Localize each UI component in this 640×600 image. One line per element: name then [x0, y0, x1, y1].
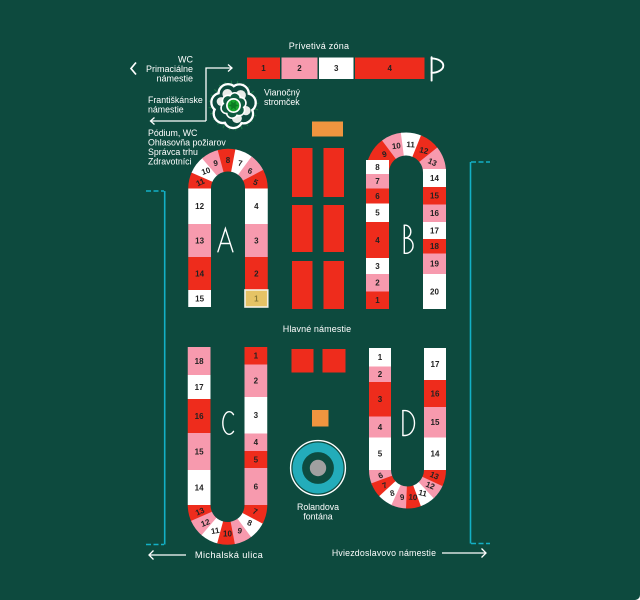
svg-text:3: 3	[378, 395, 383, 404]
svg-text:2: 2	[378, 370, 383, 379]
svg-text:17: 17	[431, 360, 440, 369]
svg-text:4: 4	[375, 236, 380, 245]
svg-text:17: 17	[430, 226, 439, 235]
svg-text:4: 4	[254, 438, 259, 447]
svg-text:17: 17	[195, 383, 204, 392]
svg-text:14: 14	[430, 174, 439, 183]
svg-text:5: 5	[254, 455, 259, 464]
svg-text:1: 1	[254, 352, 259, 361]
svg-text:Hlavné námestie: Hlavné námestie	[283, 324, 352, 334]
svg-text:Primaciálne: Primaciálne	[146, 64, 193, 74]
svg-text:20: 20	[430, 287, 439, 296]
svg-text:2: 2	[254, 269, 259, 278]
svg-text:10: 10	[391, 141, 401, 151]
svg-text:11: 11	[406, 140, 416, 150]
svg-text:14: 14	[431, 450, 440, 459]
svg-text:18: 18	[195, 357, 204, 366]
svg-text:14: 14	[195, 269, 204, 278]
svg-text:14: 14	[195, 483, 204, 492]
svg-text:2: 2	[254, 377, 259, 386]
svg-text:2: 2	[375, 279, 380, 288]
svg-text:10: 10	[408, 493, 418, 503]
svg-text:7: 7	[375, 177, 380, 186]
svg-text:16: 16	[195, 412, 204, 421]
svg-text:námestie: námestie	[156, 74, 193, 84]
svg-text:15: 15	[431, 418, 440, 427]
svg-text:6: 6	[254, 482, 259, 491]
svg-text:5: 5	[375, 209, 380, 218]
svg-text:Prívetivá zóna: Prívetivá zóna	[289, 41, 350, 51]
svg-text:5: 5	[378, 450, 383, 459]
svg-text:15: 15	[430, 192, 439, 201]
svg-text:Hviezdoslavovo námestie: Hviezdoslavovo námestie	[332, 548, 436, 558]
svg-text:Zdravotníci: Zdravotníci	[148, 157, 192, 167]
svg-text:Správca trhu: Správca trhu	[148, 147, 198, 157]
svg-text:15: 15	[195, 447, 204, 456]
svg-text:3: 3	[254, 236, 259, 245]
svg-text:Michalská ulica: Michalská ulica	[195, 550, 264, 560]
svg-text:6: 6	[375, 192, 380, 201]
svg-text:8: 8	[226, 156, 231, 165]
svg-text:12: 12	[195, 202, 204, 211]
svg-text:18: 18	[430, 242, 439, 251]
svg-text:16: 16	[431, 389, 440, 398]
svg-text:WC: WC	[178, 55, 193, 65]
svg-text:Ohlasovňa požiarov: Ohlasovňa požiarov	[148, 138, 226, 148]
svg-text:10: 10	[223, 529, 232, 538]
svg-text:Rolandova: Rolandova	[297, 502, 339, 512]
svg-text:3: 3	[254, 411, 259, 420]
svg-text:4: 4	[378, 423, 383, 432]
svg-text:4: 4	[388, 64, 393, 73]
svg-text:15: 15	[195, 294, 204, 303]
svg-text:1: 1	[261, 64, 266, 73]
svg-text:1: 1	[254, 294, 259, 303]
svg-text:3: 3	[375, 262, 380, 271]
svg-text:1: 1	[375, 296, 380, 305]
svg-text:fontána: fontána	[303, 512, 332, 522]
svg-text:3: 3	[334, 64, 339, 73]
svg-text:1: 1	[378, 353, 383, 362]
svg-text:2: 2	[297, 64, 302, 73]
svg-text:námestie: námestie	[148, 105, 184, 115]
svg-text:Vianočný: Vianočný	[264, 88, 301, 98]
svg-text:4: 4	[254, 202, 259, 211]
svg-text:16: 16	[430, 209, 439, 218]
svg-text:19: 19	[430, 260, 439, 269]
svg-text:13: 13	[195, 236, 204, 245]
svg-text:Pódium, WC: Pódium, WC	[148, 128, 198, 138]
svg-text:Františkánske: Františkánske	[148, 95, 203, 105]
svg-text:stromček: stromček	[264, 97, 300, 107]
svg-text:8: 8	[375, 163, 380, 172]
